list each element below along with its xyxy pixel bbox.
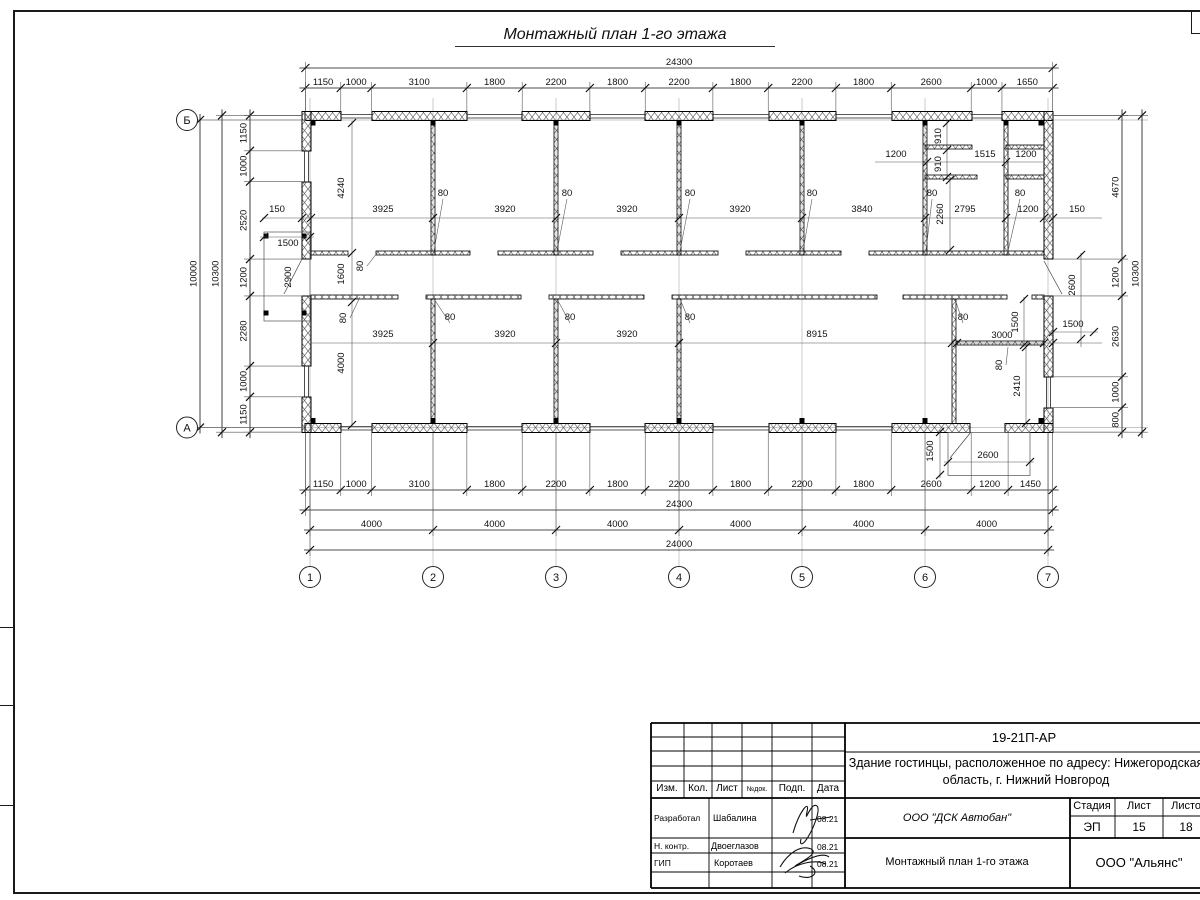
tb-stage-label: Стадия	[1073, 800, 1111, 812]
tb-project-line1: Здание гостинцы, расположенное по адресу…	[849, 756, 1200, 770]
tb-org: ООО "Альянс"	[1096, 855, 1183, 870]
tb-role-gip: ГИП	[654, 858, 671, 868]
tb-company: ООО "ДСК Автобан"	[903, 812, 1011, 824]
tb-name-gip: Коротаев	[714, 858, 753, 868]
tb-date-gip: 08.21	[817, 859, 838, 869]
tb-col-ndok: №док.	[747, 786, 768, 793]
tb-col-podp: Подп.	[779, 783, 806, 794]
tb-role-developer: Разработал	[654, 813, 700, 823]
tb-col-data: Дата	[817, 783, 839, 794]
drawing-sheet: Монтажный план 1-го этажа	[0, 0, 1200, 900]
tb-col-kol: Кол.	[688, 783, 708, 794]
tb-sheets-value: 18	[1179, 820, 1192, 834]
tb-col-list: Лист	[716, 783, 738, 794]
tb-stage-value: ЭП	[1083, 820, 1100, 834]
tb-col-izm: Изм.	[656, 783, 677, 794]
tb-name-developer: Шабалина	[713, 813, 756, 823]
tb-name-ncontr: Двоеглазов	[711, 841, 759, 851]
tb-doc-number: 19-21П-АР	[992, 730, 1056, 745]
tb-sheet-value: 15	[1132, 820, 1145, 834]
tb-role-ncontr: Н. контр.	[654, 841, 689, 851]
tb-project-line2: область, г. Нижний Новгород	[943, 773, 1110, 787]
tb-date-ncontr: 08.21	[817, 842, 838, 852]
tb-drawing-name: Монтажный план 1-го этажа	[885, 856, 1028, 868]
tb-sheets-label: Листов	[1171, 800, 1200, 812]
tb-sheet-label: Лист	[1127, 800, 1151, 812]
tb-date-developer: 08.21	[817, 814, 838, 824]
